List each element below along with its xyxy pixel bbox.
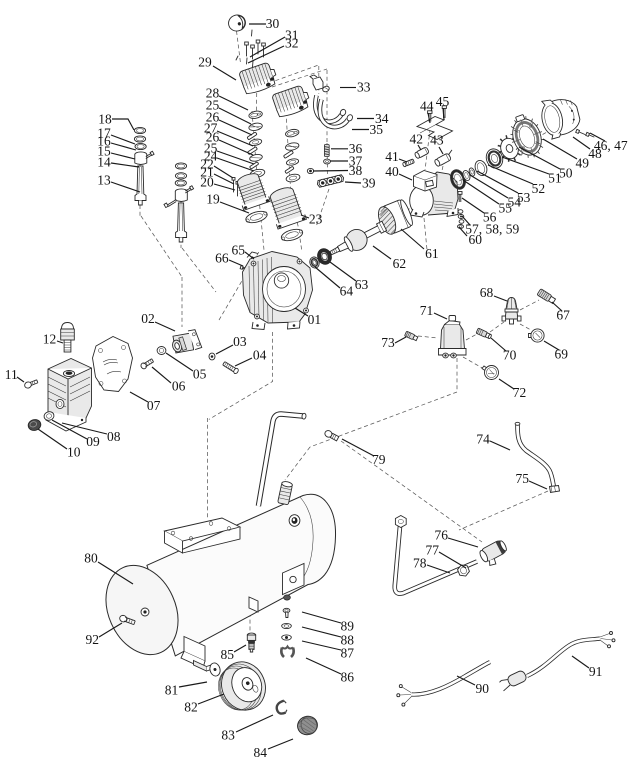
- svg-text:32: 32: [285, 36, 299, 51]
- svg-text:01: 01: [308, 312, 322, 327]
- svg-text:65: 65: [232, 242, 246, 257]
- svg-text:04: 04: [253, 347, 267, 362]
- svg-text:70: 70: [503, 348, 517, 363]
- svg-text:86: 86: [341, 670, 355, 685]
- svg-text:39: 39: [362, 176, 376, 191]
- svg-text:92: 92: [85, 632, 99, 647]
- svg-text:33: 33: [357, 80, 371, 95]
- svg-text:82: 82: [184, 700, 198, 715]
- svg-text:02: 02: [141, 311, 155, 326]
- svg-text:90: 90: [476, 681, 490, 696]
- svg-text:11: 11: [5, 367, 18, 382]
- svg-text:60: 60: [468, 232, 482, 247]
- svg-text:51: 51: [548, 171, 562, 186]
- svg-text:62: 62: [393, 256, 407, 271]
- svg-text:13: 13: [97, 173, 111, 188]
- svg-text:35: 35: [370, 122, 384, 137]
- svg-text:61: 61: [425, 246, 439, 261]
- svg-text:55: 55: [499, 201, 513, 216]
- svg-text:30: 30: [266, 16, 280, 31]
- svg-text:45: 45: [436, 94, 450, 109]
- svg-text:89: 89: [341, 619, 355, 634]
- svg-text:78: 78: [413, 556, 427, 571]
- svg-text:84: 84: [253, 745, 267, 760]
- svg-text:87: 87: [341, 646, 355, 661]
- svg-text:20: 20: [200, 175, 214, 190]
- svg-text:63: 63: [355, 277, 369, 292]
- svg-text:64: 64: [340, 284, 354, 299]
- svg-text:18: 18: [98, 112, 112, 127]
- svg-text:14: 14: [97, 155, 111, 170]
- svg-text:83: 83: [221, 727, 235, 742]
- svg-text:80: 80: [84, 551, 98, 566]
- svg-text:74: 74: [476, 431, 490, 446]
- svg-text:38: 38: [349, 163, 363, 178]
- svg-text:06: 06: [172, 379, 186, 394]
- svg-text:77: 77: [426, 543, 440, 558]
- svg-text:66: 66: [215, 251, 229, 266]
- svg-text:72: 72: [513, 385, 527, 400]
- svg-text:23: 23: [309, 211, 323, 226]
- svg-text:12: 12: [43, 331, 57, 346]
- svg-text:40: 40: [385, 164, 399, 179]
- svg-text:49: 49: [575, 156, 589, 171]
- svg-text:29: 29: [198, 55, 212, 70]
- svg-text:03: 03: [233, 334, 247, 349]
- svg-text:42: 42: [410, 132, 424, 147]
- svg-text:91: 91: [589, 664, 603, 679]
- svg-text:81: 81: [165, 683, 179, 698]
- svg-text:48: 48: [588, 146, 602, 161]
- svg-text:76: 76: [435, 528, 449, 543]
- svg-text:07: 07: [147, 398, 161, 413]
- svg-text:41: 41: [385, 149, 399, 164]
- svg-text:52: 52: [532, 181, 546, 196]
- svg-text:73: 73: [381, 335, 395, 350]
- svg-text:05: 05: [193, 366, 207, 381]
- svg-text:79: 79: [372, 452, 386, 467]
- svg-text:85: 85: [221, 647, 235, 662]
- svg-text:19: 19: [206, 192, 220, 207]
- svg-text:71: 71: [420, 303, 434, 318]
- svg-text:68: 68: [480, 285, 494, 300]
- svg-text:09: 09: [86, 434, 100, 449]
- svg-text:43: 43: [430, 132, 444, 147]
- svg-text:08: 08: [107, 429, 121, 444]
- svg-text:10: 10: [67, 444, 81, 459]
- svg-text:69: 69: [555, 347, 569, 362]
- svg-text:44: 44: [420, 98, 434, 113]
- svg-text:75: 75: [515, 471, 529, 486]
- svg-text:67: 67: [556, 308, 570, 323]
